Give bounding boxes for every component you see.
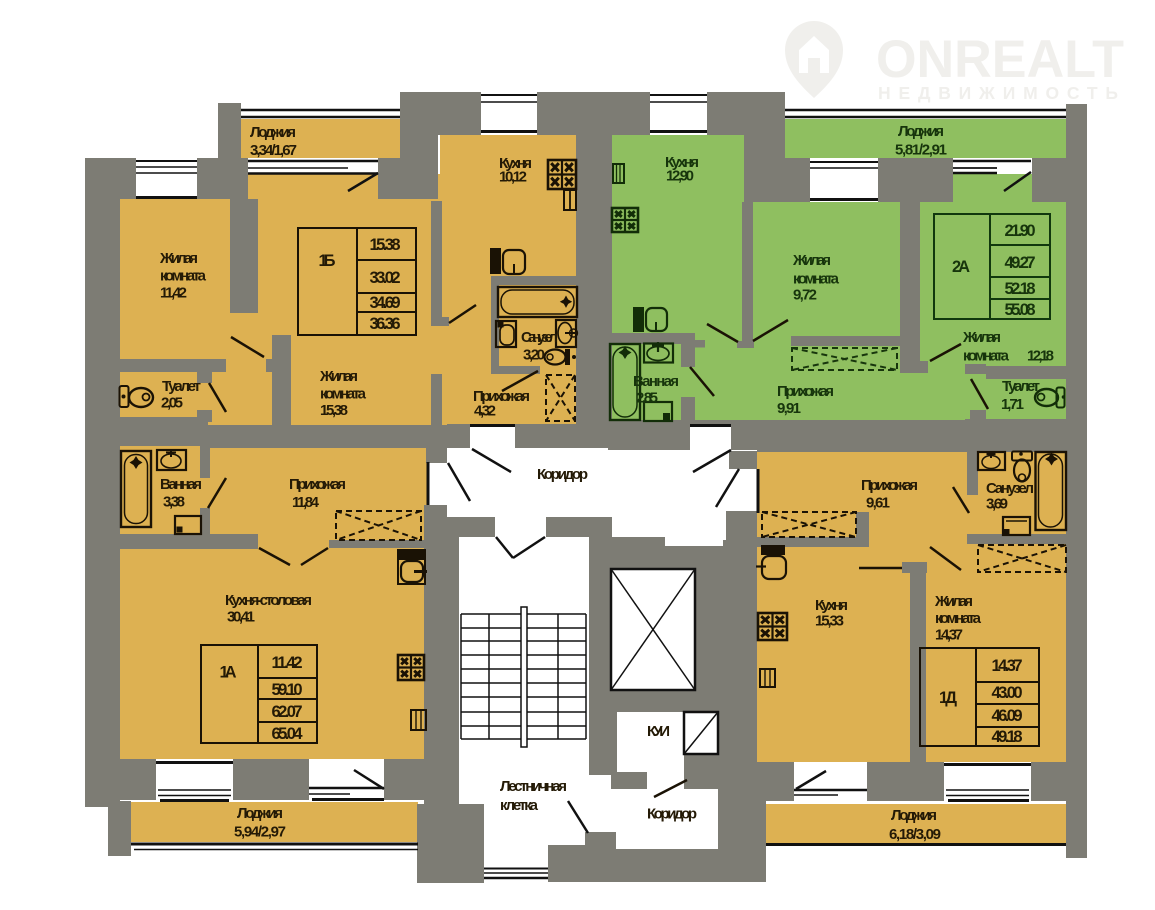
svg-text:комната: комната — [935, 610, 982, 627]
svg-text:Прихожая: Прихожая — [289, 476, 346, 493]
svg-text:3,38: 3,38 — [163, 494, 185, 511]
svg-text:Прихожая: Прихожая — [861, 477, 918, 494]
svg-text:14,37: 14,37 — [935, 627, 963, 644]
svg-text:1А: 1А — [220, 664, 237, 682]
svg-text:2,85: 2,85 — [636, 390, 658, 407]
svg-text:3,34/1,67: 3,34/1,67 — [250, 142, 297, 159]
svg-text:Лоджия: Лоджия — [250, 124, 296, 141]
svg-text:9,91: 9,91 — [777, 400, 801, 417]
svg-text:55.08: 55.08 — [1005, 301, 1036, 319]
svg-text:ONREALT: ONREALT — [876, 30, 1124, 89]
svg-text:Санузел: Санузел — [986, 480, 1034, 497]
svg-text:5,81/2,91: 5,81/2,91 — [895, 142, 947, 159]
svg-text:Коридор: Коридор — [537, 466, 588, 483]
svg-text:11,42: 11,42 — [160, 285, 187, 302]
svg-text:Туалет: Туалет — [1002, 378, 1040, 395]
svg-text:15,38: 15,38 — [320, 402, 348, 419]
svg-text:комната: комната — [963, 348, 1010, 365]
svg-text:Жилая: Жилая — [792, 252, 831, 269]
svg-text:11.42: 11.42 — [272, 654, 303, 672]
svg-text:9,72: 9,72 — [793, 287, 817, 304]
svg-text:9,61: 9,61 — [866, 495, 890, 512]
svg-text:46.09: 46.09 — [992, 707, 1023, 725]
svg-text:Лоджия: Лоджия — [891, 807, 937, 824]
svg-text:Ванная: Ванная — [160, 476, 202, 493]
svg-text:Кухня: Кухня — [815, 597, 848, 614]
svg-text:комната: комната — [320, 386, 367, 403]
svg-text:21.90: 21.90 — [1005, 222, 1036, 240]
svg-text:1,71: 1,71 — [1001, 396, 1024, 413]
svg-text:Кухня-столовая: Кухня-столовая — [225, 592, 312, 609]
svg-text:43.00: 43.00 — [992, 684, 1023, 702]
svg-text:комната: комната — [793, 271, 840, 288]
svg-text:59.10: 59.10 — [272, 681, 303, 699]
svg-text:6,18/3,09: 6,18/3,09 — [889, 826, 941, 843]
svg-text:11,84: 11,84 — [292, 494, 320, 511]
svg-text:Жилая: Жилая — [934, 593, 973, 610]
svg-text:49.18: 49.18 — [992, 728, 1023, 746]
svg-text:Жилая: Жилая — [962, 329, 1001, 346]
svg-text:Жилая: Жилая — [159, 250, 198, 267]
svg-text:Санузел: Санузел — [521, 329, 558, 346]
svg-text:1Б: 1Б — [319, 252, 336, 270]
svg-text:Жилая: Жилая — [319, 368, 358, 385]
svg-text:15.38: 15.38 — [370, 236, 401, 254]
svg-text:2,05: 2,05 — [161, 395, 183, 412]
svg-text:65.04: 65.04 — [272, 725, 304, 743]
svg-text:5,94/2,97: 5,94/2,97 — [234, 824, 286, 841]
svg-text:12,90: 12,90 — [666, 168, 694, 185]
svg-text:Ванная: Ванная — [633, 373, 679, 390]
svg-text:2А: 2А — [952, 258, 970, 276]
svg-text:62.07: 62.07 — [272, 703, 303, 721]
svg-text:Прихожая: Прихожая — [777, 383, 834, 400]
svg-text:52.18: 52.18 — [1005, 280, 1036, 298]
svg-text:15,33: 15,33 — [815, 613, 844, 630]
svg-text:33.02: 33.02 — [370, 269, 401, 287]
svg-text:КУИ: КУИ — [647, 723, 670, 740]
svg-text:36.36: 36.36 — [370, 315, 401, 333]
svg-text:49.27: 49.27 — [1005, 254, 1036, 272]
svg-text:10,12: 10,12 — [499, 169, 527, 186]
svg-text:14.37: 14.37 — [992, 657, 1023, 675]
svg-text:клетка: клетка — [500, 797, 539, 814]
svg-text:3,20: 3,20 — [523, 347, 545, 364]
svg-text:комната: комната — [160, 268, 207, 285]
svg-text:Лоджия: Лоджия — [898, 123, 944, 140]
svg-text:1Д: 1Д — [939, 689, 957, 707]
svg-text:30,41: 30,41 — [227, 609, 255, 626]
svg-text:Лестничная: Лестничная — [500, 778, 567, 795]
svg-text:12,18: 12,18 — [1027, 348, 1054, 365]
svg-text:Коридор: Коридор — [647, 806, 697, 823]
svg-text:4,32: 4,32 — [474, 403, 496, 420]
svg-text:Туалет: Туалет — [162, 378, 201, 395]
svg-text:Лоджия: Лоджия — [237, 805, 283, 822]
svg-text:3,69: 3,69 — [986, 496, 1008, 513]
svg-text:34.69: 34.69 — [370, 294, 401, 312]
